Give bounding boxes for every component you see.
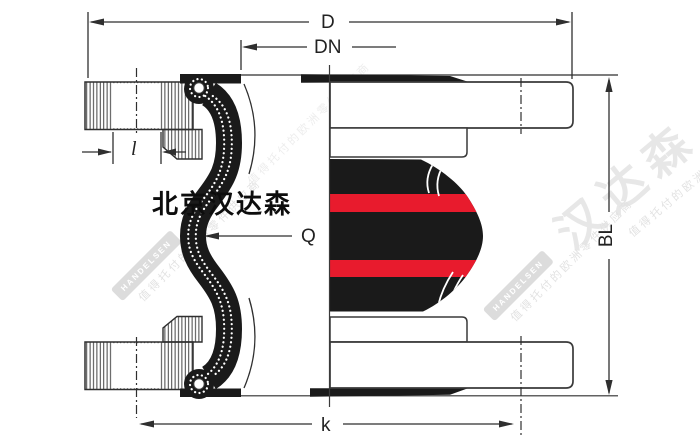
flange-top <box>330 82 573 128</box>
bead-wire-top <box>194 83 204 93</box>
dimension-label-k: k <box>321 416 331 435</box>
section-hub-bottom <box>163 317 202 343</box>
diagram-canvas: 汉达森 值得托付的欧洲零件供应商 HANDELSEN 值得托付的欧洲零件供应商 … <box>0 0 700 445</box>
brand-overlay-text: 北京汉达森 <box>152 184 292 221</box>
technical-drawing <box>0 0 700 445</box>
red-stripe-bottom <box>325 260 487 277</box>
dimension-label-D: D <box>321 13 335 32</box>
hub-ring-bottom <box>330 317 467 342</box>
dimension-label-Q: Q <box>301 227 316 246</box>
arch-silhouette-top <box>244 84 255 174</box>
external-view <box>241 65 618 438</box>
section-view <box>85 68 255 418</box>
dimension-label-BL: BL <box>597 224 616 247</box>
arch-silhouette-bottom <box>244 298 255 388</box>
dimension-label-DN: DN <box>314 38 341 57</box>
bead-wire-bottom <box>194 379 204 389</box>
rubber-arch <box>329 159 483 312</box>
section-hub-top <box>163 130 202 160</box>
hub-ring-top <box>330 128 467 157</box>
flange-bottom <box>330 342 573 388</box>
red-stripe-top <box>325 194 487 212</box>
dimension-label-l: l <box>131 139 137 159</box>
